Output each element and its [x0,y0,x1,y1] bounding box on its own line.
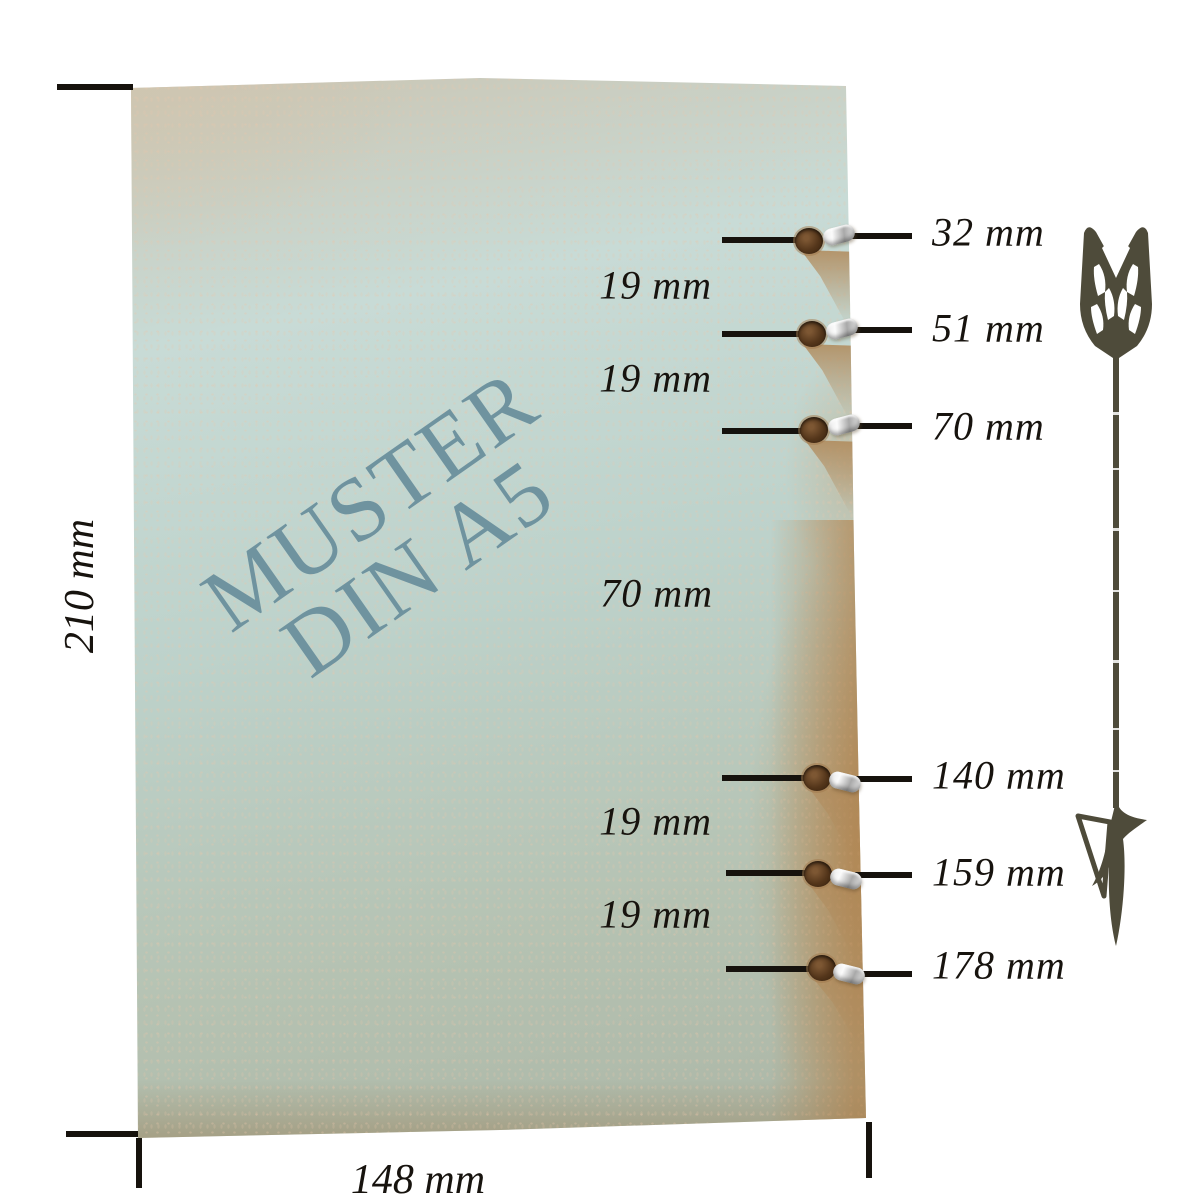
hole1-distance-label: 32 mm [932,209,1045,256]
gap2-label: 19 mm [599,355,712,402]
hole-1 [795,228,823,254]
hole3-distance-label: 70 mm [932,403,1045,450]
hole5-leader-left [726,870,815,876]
hole5-distance-label: 159 mm [932,849,1066,896]
hole2-distance-label: 51 mm [932,305,1045,352]
gap4-label: 19 mm [599,798,712,845]
height-dim-tick-top [57,84,133,90]
gap3-label: 70 mm [600,570,713,617]
hole3-leader-left [722,428,810,434]
hole4-leader-left [722,775,813,781]
width-dim-tick-right [866,1122,872,1178]
hole3-leader-right [851,423,912,429]
hole2-leader-left [722,331,808,337]
hole-2 [798,321,826,347]
hole-6 [808,955,836,981]
hole6-leader-right [857,971,912,977]
hole1-leader-left [722,237,806,243]
sheet-width-label: 148 mm [351,1156,485,1200]
hole4-leader-right [855,776,912,782]
height-dim-tick-bottom [66,1131,138,1137]
hole5-leader-right [855,872,912,878]
hole-4 [803,765,831,791]
hole4-distance-label: 140 mm [932,752,1066,799]
hole-5 [804,861,832,887]
height-dim-corner-tick [136,1138,142,1188]
gap1-label: 19 mm [599,262,712,309]
diagram-canvas: MUSTER DIN A5 210 mm 148 mm 32 mm 51 mm … [0,0,1200,1200]
gap5-label: 19 mm [599,891,712,938]
down-arrow-icon [1066,222,1166,962]
hole-3 [800,417,828,443]
hole6-distance-label: 178 mm [932,942,1066,989]
sheet-height-label: 210 mm [56,519,104,653]
hole6-leader-left [726,966,818,972]
